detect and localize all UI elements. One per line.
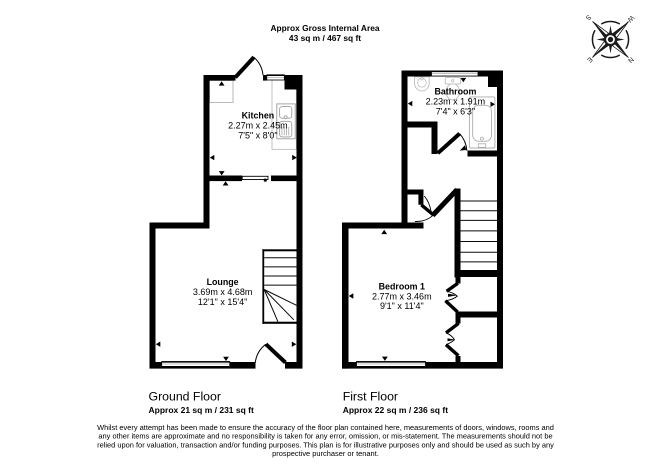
- svg-text:Lounge: Lounge: [207, 277, 239, 287]
- svg-text:First Floor: First Floor: [343, 389, 398, 403]
- svg-text:9'1" x 11'4": 9'1" x 11'4": [380, 301, 424, 311]
- svg-text:Bedroom 1: Bedroom 1: [379, 281, 425, 291]
- svg-text:prospective purchaser or tenan: prospective purchaser or tenant.: [272, 449, 379, 458]
- svg-text:Ground Floor: Ground Floor: [149, 389, 221, 403]
- svg-text:43 sq m / 467 sq ft: 43 sq m / 467 sq ft: [289, 33, 361, 43]
- svg-text:Bathroom: Bathroom: [434, 87, 476, 97]
- svg-text:3.69m x 4.68m: 3.69m x 4.68m: [193, 287, 253, 297]
- svg-text:Approx 21 sq m / 231 sq ft: Approx 21 sq m / 231 sq ft: [149, 405, 255, 415]
- svg-text:12'1" x 15'4": 12'1" x 15'4": [198, 297, 247, 307]
- svg-text:2.23m x 1.91m: 2.23m x 1.91m: [426, 97, 486, 107]
- svg-text:Approx 22 sq m / 236 sq ft: Approx 22 sq m / 236 sq ft: [343, 405, 449, 415]
- svg-text:2.77m x 3.46m: 2.77m x 3.46m: [372, 291, 432, 301]
- svg-text:any other items are approximat: any other items are approximate and no r…: [98, 432, 552, 441]
- svg-text:7'5" x 8'0": 7'5" x 8'0": [238, 131, 277, 141]
- svg-text:2.27m x 2.45m: 2.27m x 2.45m: [228, 121, 288, 131]
- svg-text:7'4" x 6'3": 7'4" x 6'3": [436, 107, 475, 117]
- svg-text:Approx Gross Internal Area: Approx Gross Internal Area: [270, 23, 379, 33]
- svg-text:relied upon for valuation, tra: relied upon for valuation, transaction a…: [97, 440, 554, 449]
- svg-text:Kitchen: Kitchen: [242, 111, 275, 121]
- svg-text:Whilst every attempt has been: Whilst every attempt has been made to en…: [97, 423, 554, 432]
